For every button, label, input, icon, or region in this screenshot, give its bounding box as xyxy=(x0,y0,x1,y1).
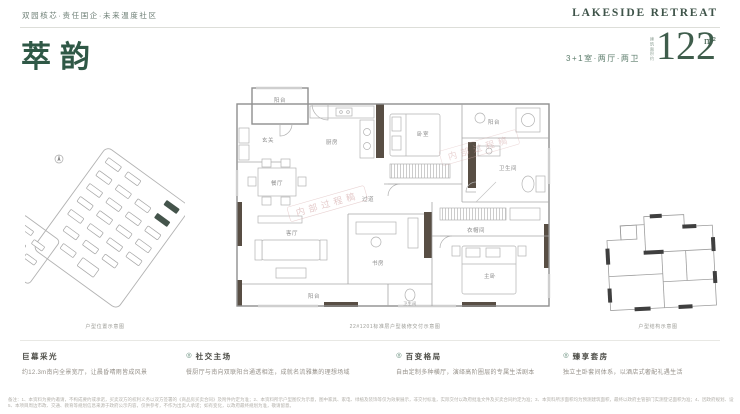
feature-desc: 餐厨厅与南向双联阳台通透相连，成就名流雅集的理想场域 xyxy=(186,367,392,376)
room-label: 卧室 xyxy=(417,130,429,138)
room-label: 客厅 xyxy=(286,229,298,237)
highlighted-buildings xyxy=(154,200,180,227)
compass-icon xyxy=(55,155,63,163)
header-divider xyxy=(20,27,720,28)
feature-daylight: 巨幕采光 约12.3m南向全景宽厅，让晨昏晴雨皆成风景 xyxy=(22,351,184,376)
room-label: 餐厅 xyxy=(271,179,283,187)
site-plan-illustration xyxy=(25,146,185,318)
disclaimer-line: 5、本项目周边市政、交通、教育等规划信息来源于政府公示内容，仅供参考，不作为出卖… xyxy=(8,403,734,409)
target-icon: ◎ xyxy=(396,353,402,360)
room-label: 主卧 xyxy=(484,272,496,280)
room-label: 阳台 xyxy=(488,118,500,126)
room-label: 玄关 xyxy=(262,136,274,144)
feature-layout: ◎ 百变格局 自由定制多种横厅，演绎高阶圈层的专属生活剧本 xyxy=(396,351,582,376)
caption-site-plan: 户型位置示意图 xyxy=(25,323,185,330)
disclaimer-line: 备注：1、本资料为要约邀请，不构成要约或承诺，买卖双方的权利义务以双方签署的《商… xyxy=(8,397,734,403)
brand-logo: LAKESIDE RETREAT xyxy=(572,7,718,19)
feature-desc: 约12.3m南向全景宽厅，让晨昏晴雨皆成风景 xyxy=(22,367,184,376)
target-icon: ◎ xyxy=(186,353,192,360)
structure-plan-illustration xyxy=(588,196,728,322)
caption-structure-plan: 户型结构示意图 xyxy=(588,323,728,330)
room-label: 卫生间 xyxy=(499,164,517,172)
area-unit: m² xyxy=(704,35,716,47)
features-divider xyxy=(20,340,720,341)
target-icon: ◎ xyxy=(563,353,569,360)
room-label: 过道 xyxy=(362,195,374,203)
feature-suite: ◎ 臻享套房 独立主卧套间体系，以酒店式奢配礼遇生活 xyxy=(563,351,731,376)
room-label: 厨房 xyxy=(326,138,338,146)
unit-layout-spec: 3+1室·两厅·两卫 xyxy=(566,53,640,64)
room-label: 卫生间 xyxy=(403,300,417,306)
svg-text:内部过程稿: 内部过程稿 xyxy=(295,189,361,217)
feature-title: 臻享套房 xyxy=(573,351,609,362)
caption-floorplan: 22#1201标准层户型装修交付示意图 xyxy=(228,323,562,330)
feature-desc: 独立主卧套间体系，以酒店式奢配礼遇生活 xyxy=(563,367,731,376)
unit-name-title: 萃韵 xyxy=(21,32,99,76)
area-label: 建筑面积约 xyxy=(649,37,655,67)
room-label: 书房 xyxy=(372,259,384,267)
room-label: 阳台 xyxy=(308,292,320,300)
room-label: 阳台 xyxy=(274,96,286,104)
feature-title: 百变格局 xyxy=(406,351,442,362)
feature-title: 社交主场 xyxy=(196,351,232,362)
feature-title: 巨幕采光 xyxy=(22,351,58,362)
header-tagline: 双园核芯·责任国企·未来温度社区 xyxy=(22,10,158,21)
room-label: 衣帽间 xyxy=(467,226,485,234)
poster-page: 双园核芯·责任国企·未来温度社区 LAKESIDE RETREAT 萃韵 3+1… xyxy=(0,0,740,414)
feature-social: ◎ 社交主场 餐厨厅与南向双联阳台通透相连，成就名流雅集的理想场域 xyxy=(186,351,392,376)
floorplan-illustration: 阳台 玄关 厨房 卧室 阳台 卫生间 过道 餐厅 客厅 阳台 书房 衣帽间 主卧… xyxy=(228,84,562,324)
feature-desc: 自由定制多种横厅，演绎高阶圈层的专属生活剧本 xyxy=(396,367,582,376)
disclaimer: 备注：1、本资料为要约邀请，不构成要约或承诺，买卖双方的权利义务以双方签署的《商… xyxy=(8,397,734,408)
